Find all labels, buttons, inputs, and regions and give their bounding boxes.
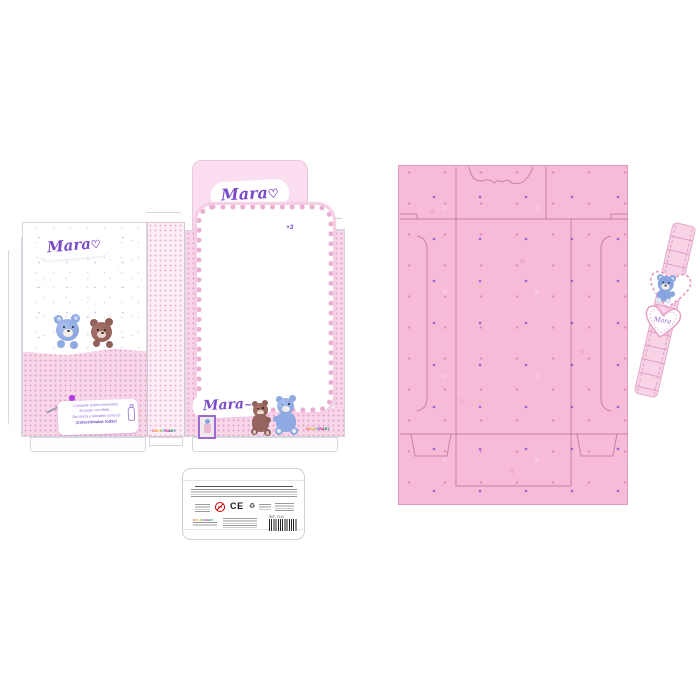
doll-outline-icon	[128, 407, 135, 421]
ce-mark: CE	[230, 501, 244, 511]
bear-eye	[97, 329, 99, 331]
doll-outline-head	[129, 404, 133, 408]
bear-eye	[104, 329, 106, 331]
label-micro-block	[259, 504, 271, 511]
star-motif: ☆	[37, 281, 44, 290]
plus-motif: +	[93, 301, 98, 310]
fold-lines	[399, 166, 629, 506]
window-mara-logo-text: Mara	[203, 396, 245, 414]
header-mara-logo: Mara♡	[213, 181, 288, 208]
bear-foot-pad	[266, 431, 270, 435]
barcode-label: 0-3 CE ♻ COLORBABY REF. 2140	[182, 468, 305, 540]
age-warning-icon: 0-3	[215, 502, 225, 512]
bear-paw	[57, 340, 65, 348]
bear-inner-ear	[57, 317, 61, 321]
age-warning-text: 0-3	[218, 505, 222, 509]
bear-nose	[101, 332, 104, 335]
tag-heart-text: Mara	[640, 301, 685, 343]
age-mark: +3	[286, 224, 293, 231]
mini-doll-body	[204, 424, 211, 433]
barcode	[269, 519, 297, 531]
bear-paw	[70, 341, 78, 349]
window-panel-right-strip	[334, 231, 344, 436]
bear-arm	[265, 417, 271, 423]
bear-eye	[72, 326, 74, 328]
bear-foot-pad	[292, 429, 296, 433]
needle-ball	[69, 395, 75, 401]
label-fold-line	[183, 480, 304, 481]
maker-logo: COLORBABY	[306, 427, 330, 431]
front-panel: ☆ ☆ + ☆ Mara♡	[22, 222, 147, 437]
heart-icon: ♡	[90, 239, 101, 252]
recycle-icon: ♻	[249, 502, 255, 510]
label-micro-block	[223, 518, 257, 528]
bear-paw	[106, 341, 113, 348]
label-micro-block	[193, 522, 217, 527]
label-title-line	[195, 486, 293, 487]
bear-eye	[257, 408, 259, 410]
display-window	[197, 205, 333, 412]
back-bottom-flap	[192, 437, 338, 452]
star-motif: ☆	[115, 263, 122, 272]
bear-inner-ear	[74, 316, 78, 320]
side-gusset	[147, 222, 185, 437]
label-micro-block	[275, 503, 294, 512]
gusset-bottom-flap	[149, 437, 183, 446]
wrist-tag: Mara	[636, 222, 696, 398]
bear-eye	[63, 326, 65, 328]
main-box-dieline: ☆ ☆ + ☆ Mara♡	[8, 160, 346, 456]
tag-band: Mara	[631, 221, 700, 399]
bear-nose	[67, 330, 70, 333]
front-mara-logo: Mara♡	[38, 232, 109, 259]
message-box: Comparte dulces momentos de juego con Ma…	[57, 399, 138, 436]
label-legal-text	[191, 489, 297, 497]
maker-logo: COLORBABY	[152, 429, 176, 433]
doll-frame-icon	[198, 415, 216, 439]
header-mara-logo-text: Mara	[221, 183, 269, 204]
bear-foot-pad	[277, 429, 281, 433]
window-mara-logo: Mara~	[195, 393, 261, 416]
bear-muzzle	[282, 406, 290, 412]
glue-flap	[8, 237, 22, 437]
label-micro-block	[195, 504, 210, 512]
front-mara-logo-text: Mara	[46, 235, 91, 257]
bear-eye	[288, 403, 290, 405]
bear-arm	[273, 416, 279, 422]
heart-icon: ♡	[268, 187, 279, 202]
front-bottom-flap	[30, 437, 146, 452]
packaging-artboard: ☆ ☆ + ☆ Mara♡	[0, 0, 700, 700]
bear-foot-pad	[253, 430, 257, 434]
bear-paw	[93, 340, 100, 347]
bear-eye	[262, 407, 264, 409]
back-panel-dieline: ♥ ♥ ♥ ♥ ♥	[398, 165, 628, 505]
